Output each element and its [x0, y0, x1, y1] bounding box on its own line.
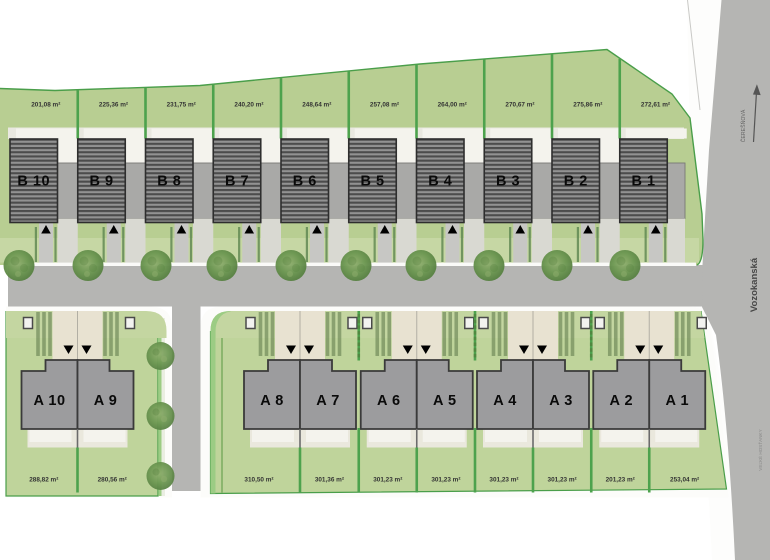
- svg-text:A 7: A 7: [316, 393, 340, 409]
- svg-text:A 3: A 3: [549, 393, 573, 409]
- svg-text:B 5: B 5: [360, 174, 384, 190]
- svg-text:B 7: B 7: [225, 174, 249, 190]
- svg-text:B 6: B 6: [293, 174, 317, 190]
- svg-text:A 2: A 2: [609, 393, 633, 409]
- svg-text:310,50 m²: 310,50 m²: [244, 477, 273, 484]
- svg-text:201,23 m²: 201,23 m²: [606, 477, 635, 484]
- svg-text:A 5: A 5: [433, 393, 457, 409]
- svg-text:225,36 m²: 225,36 m²: [99, 102, 128, 109]
- svg-text:257,08 m²: 257,08 m²: [370, 102, 399, 109]
- svg-text:288,82 m²: 288,82 m²: [29, 477, 58, 484]
- svg-text:B 9: B 9: [89, 174, 113, 190]
- svg-text:253,04 m²: 253,04 m²: [670, 477, 699, 484]
- svg-text:248,64 m²: 248,64 m²: [302, 102, 331, 109]
- svg-text:B 4: B 4: [428, 174, 452, 190]
- svg-text:301,23 m²: 301,23 m²: [489, 477, 518, 484]
- svg-text:A 1: A 1: [665, 393, 689, 409]
- svg-text:201,08 m²: 201,08 m²: [31, 102, 60, 109]
- svg-text:240,20 m²: 240,20 m²: [234, 102, 263, 109]
- svg-text:301,23 m²: 301,23 m²: [373, 477, 402, 484]
- svg-text:B 1: B 1: [631, 174, 655, 190]
- svg-text:B 10: B 10: [17, 174, 50, 190]
- svg-text:275,86 m²: 275,86 m²: [573, 102, 602, 109]
- svg-text:A 9: A 9: [94, 393, 118, 409]
- svg-text:301,23 m²: 301,23 m²: [548, 477, 577, 484]
- svg-text:B 3: B 3: [496, 174, 520, 190]
- svg-text:264,00 m²: 264,00 m²: [438, 102, 467, 109]
- svg-text:270,67 m²: 270,67 m²: [505, 102, 534, 109]
- svg-text:231,75 m²: 231,75 m²: [167, 102, 196, 109]
- svg-text:Vozokanská: Vozokanská: [749, 257, 760, 312]
- svg-text:301,23 m²: 301,23 m²: [431, 477, 460, 484]
- svg-text:B 2: B 2: [564, 174, 588, 190]
- svg-text:A 4: A 4: [493, 393, 517, 409]
- svg-text:272,61 m²: 272,61 m²: [641, 102, 670, 109]
- svg-text:A 8: A 8: [260, 393, 284, 409]
- svg-text:280,56 m²: 280,56 m²: [98, 477, 127, 484]
- svg-text:ČEREŠŇOVÁ: ČEREŠŇOVÁ: [740, 109, 747, 142]
- svg-text:A 10: A 10: [33, 393, 65, 409]
- svg-text:B 8: B 8: [157, 174, 181, 190]
- svg-text:A 6: A 6: [377, 393, 401, 409]
- svg-text:301,36 m²: 301,36 m²: [315, 477, 344, 484]
- svg-text:VEĽKÉ HOSŤANKY: VEĽKÉ HOSŤANKY: [756, 429, 763, 470]
